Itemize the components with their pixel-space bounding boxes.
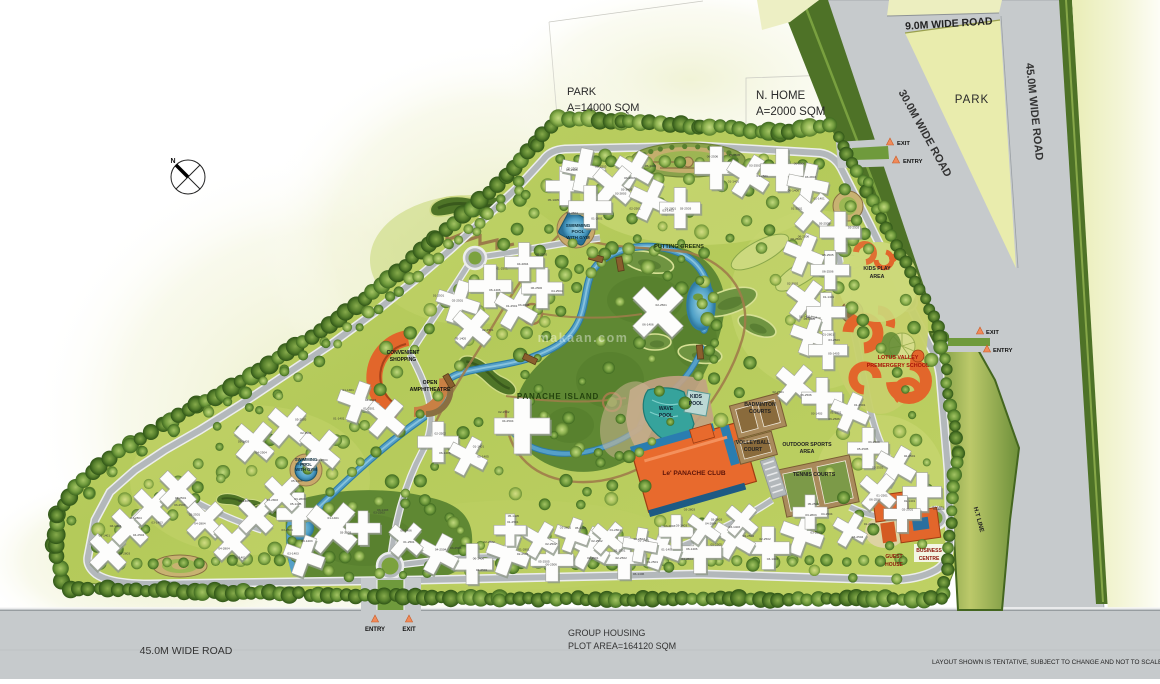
svg-text:06-2506: 06-2506: [800, 393, 812, 397]
svg-text:01-1401: 01-1401: [823, 295, 835, 299]
svg-text:03-2803: 03-2803: [805, 175, 817, 179]
svg-text:POOL: POOL: [571, 229, 584, 234]
svg-text:LAYOUT SHOWN IS TENTATIVE, SUB: LAYOUT SHOWN IS TENTATIVE, SUBJECT TO CH…: [932, 659, 1160, 666]
svg-text:03-2503: 03-2503: [868, 440, 880, 444]
svg-text:POOL: POOL: [659, 413, 673, 419]
svg-text:05-2505: 05-2505: [857, 447, 869, 451]
svg-text:03-2503: 03-2503: [848, 226, 860, 230]
svg-text:05-2505: 05-2505: [729, 153, 741, 157]
svg-text:05-2505: 05-2505: [595, 164, 607, 168]
svg-text:CENTRE: CENTRE: [919, 556, 940, 562]
svg-text:05-2505: 05-2505: [822, 253, 834, 257]
svg-text:EXIT: EXIT: [402, 627, 416, 633]
svg-text:03-2803: 03-2803: [119, 551, 131, 555]
svg-text:06-2506: 06-2506: [794, 162, 806, 166]
svg-text:05-1405: 05-1405: [575, 526, 587, 530]
svg-text:04-2804: 04-2804: [194, 521, 206, 525]
svg-text:03-2503: 03-2503: [810, 530, 822, 534]
svg-text:02-2502: 02-2502: [517, 552, 529, 556]
svg-text:03-2803: 03-2803: [624, 176, 636, 180]
svg-text:04-2804: 04-2804: [218, 546, 230, 550]
svg-text:05-2505: 05-2505: [819, 221, 831, 225]
svg-text:03-2503: 03-2503: [450, 546, 462, 550]
svg-text:01-2501: 01-2501: [830, 410, 842, 414]
svg-text:02-2501: 02-2501: [629, 206, 641, 210]
svg-text:01-1401: 01-1401: [234, 555, 246, 559]
svg-text:02-2501: 02-2501: [655, 303, 667, 307]
svg-text:06-1406: 06-1406: [788, 188, 800, 192]
svg-text:AMPHITHEATRE: AMPHITHEATRE: [410, 387, 451, 393]
svg-text:05-2505: 05-2505: [711, 543, 723, 547]
svg-text:01-1401: 01-1401: [661, 547, 673, 551]
svg-text:04-2804: 04-2804: [681, 557, 693, 561]
svg-text:06-2506: 06-2506: [707, 154, 719, 158]
svg-text:AREA: AREA: [870, 274, 885, 280]
svg-text:02-2501: 02-2501: [904, 454, 916, 458]
svg-text:05-1405: 05-1405: [828, 352, 840, 356]
svg-text:WITH GYM: WITH GYM: [295, 467, 317, 472]
svg-text:01-2801: 01-2801: [864, 522, 876, 526]
svg-text:VOLLEYBALL: VOLLEYBALL: [736, 440, 771, 446]
svg-text:04-2504: 04-2504: [806, 315, 818, 319]
svg-text:04-2504: 04-2504: [365, 398, 377, 402]
svg-text:02-2501: 02-2501: [902, 507, 914, 511]
svg-text:03-2803: 03-2803: [267, 498, 279, 502]
svg-text:06-2506: 06-2506: [828, 417, 840, 421]
svg-text:06-1406: 06-1406: [686, 547, 698, 551]
svg-text:04-2804: 04-2804: [517, 262, 529, 266]
svg-text:TENNIS COURTS: TENNIS COURTS: [793, 472, 836, 478]
svg-text:02-2502: 02-2502: [498, 410, 510, 414]
svg-text:02-2502: 02-2502: [872, 465, 884, 469]
svg-text:03-2803: 03-2803: [684, 507, 696, 511]
svg-text:makaan.com: makaan.com: [538, 331, 629, 345]
svg-text:KIDS PLAY: KIDS PLAY: [863, 266, 891, 272]
svg-text:01-2501: 01-2501: [647, 560, 659, 564]
svg-text:EXIT: EXIT: [986, 330, 999, 336]
svg-text:A=14000 SQM: A=14000 SQM: [567, 102, 639, 114]
svg-text:05-1405: 05-1405: [645, 164, 657, 168]
svg-text:05-1405: 05-1405: [508, 514, 520, 518]
svg-text:04-2504: 04-2504: [435, 547, 447, 551]
svg-text:N: N: [170, 158, 175, 165]
svg-text:LOTUS VALLEY: LOTUS VALLEY: [878, 355, 919, 361]
svg-text:COURTS: COURTS: [749, 409, 771, 415]
svg-text:01-2801: 01-2801: [823, 333, 835, 337]
svg-text:03-2503: 03-2503: [828, 338, 840, 342]
svg-text:01-2501: 01-2501: [791, 206, 803, 210]
svg-text:01-2801: 01-2801: [518, 548, 530, 552]
svg-text:01-2501: 01-2501: [854, 403, 866, 407]
svg-text:PREMERGERY SCHOOL: PREMERGERY SCHOOL: [867, 363, 930, 369]
svg-text:04-2804: 04-2804: [705, 522, 717, 526]
svg-text:02-2502: 02-2502: [483, 540, 495, 544]
svg-text:04-2504: 04-2504: [852, 535, 864, 539]
svg-text:03-2503: 03-2503: [340, 530, 352, 534]
svg-text:Le' PANACHE CLUB: Le' PANACHE CLUB: [662, 470, 726, 477]
svg-text:06-1406: 06-1406: [489, 288, 501, 292]
svg-text:POOL: POOL: [689, 401, 703, 407]
svg-text:05-1405: 05-1405: [477, 454, 489, 458]
svg-text:03-2503: 03-2503: [680, 207, 692, 211]
svg-text:GROUP HOUSING: GROUP HOUSING: [568, 628, 645, 638]
svg-text:01-2501: 01-2501: [757, 174, 769, 178]
svg-text:06-2506: 06-2506: [531, 286, 543, 290]
svg-text:PUTTING GREENS: PUTTING GREENS: [654, 244, 704, 250]
svg-text:06-2506: 06-2506: [546, 562, 558, 566]
svg-text:04-2504: 04-2504: [256, 451, 268, 455]
svg-text:06-2506: 06-2506: [869, 497, 881, 501]
svg-text:02-2501: 02-2501: [787, 282, 799, 286]
svg-text:03-1403: 03-1403: [811, 412, 823, 416]
svg-text:01-1401: 01-1401: [343, 388, 355, 392]
svg-text:05-1405: 05-1405: [238, 499, 250, 503]
svg-text:PARK: PARK: [567, 86, 597, 98]
svg-text:N. HOME: N. HOME: [756, 90, 806, 102]
svg-text:01-2501: 01-2501: [506, 304, 518, 308]
svg-text:02-2502: 02-2502: [545, 542, 557, 546]
svg-text:03-2803: 03-2803: [294, 497, 306, 501]
svg-text:01-2501: 01-2501: [433, 293, 445, 297]
svg-text:05-2505: 05-2505: [536, 252, 548, 256]
svg-text:01-2801: 01-2801: [591, 216, 603, 220]
svg-text:BADMINTON: BADMINTON: [744, 402, 776, 408]
svg-text:03-1403: 03-1403: [729, 525, 741, 529]
svg-text:04-2804: 04-2804: [130, 516, 142, 520]
svg-text:05-1405: 05-1405: [290, 502, 302, 506]
svg-text:05-2505: 05-2505: [566, 168, 578, 172]
svg-text:05-2505: 05-2505: [808, 502, 820, 506]
svg-text:01-2501: 01-2501: [175, 496, 187, 500]
svg-text:01-2501: 01-2501: [476, 568, 488, 572]
svg-text:06-1406: 06-1406: [439, 451, 451, 455]
svg-text:01-2801: 01-2801: [560, 526, 572, 530]
svg-text:WITH GYM: WITH GYM: [566, 235, 590, 240]
svg-text:04-2504: 04-2504: [551, 289, 563, 293]
svg-text:04-2504: 04-2504: [133, 533, 145, 537]
svg-text:02-2501: 02-2501: [482, 328, 494, 332]
svg-text:06-2506: 06-2506: [790, 237, 802, 241]
svg-text:03-1403: 03-1403: [301, 539, 313, 543]
svg-text:03-2503: 03-2503: [749, 164, 761, 168]
svg-text:02-2502: 02-2502: [615, 556, 627, 560]
svg-text:ENTRY: ENTRY: [903, 159, 923, 165]
svg-text:SWIMMING: SWIMMING: [566, 223, 591, 228]
svg-text:01-1401: 01-1401: [328, 516, 340, 520]
svg-text:02-2501: 02-2501: [189, 512, 201, 516]
svg-text:05-1405: 05-1405: [548, 198, 560, 202]
svg-text:02-2501: 02-2501: [772, 390, 784, 394]
svg-text:PARK: PARK: [955, 94, 989, 106]
svg-text:01-2501: 01-2501: [363, 406, 375, 410]
svg-text:EXIT: EXIT: [897, 141, 910, 147]
svg-text:03-1403: 03-1403: [676, 524, 688, 528]
svg-text:03-1403: 03-1403: [151, 521, 163, 525]
svg-text:04-2804: 04-2804: [566, 211, 578, 215]
svg-text:05-1405: 05-1405: [455, 336, 467, 340]
svg-text:A=2000 SQM: A=2000 SQM: [756, 106, 825, 118]
svg-text:SHOPPING: SHOPPING: [390, 357, 417, 363]
svg-text:CONVENIENT: CONVENIENT: [387, 350, 420, 356]
svg-text:03-1403: 03-1403: [238, 439, 250, 443]
svg-text:03-2803: 03-2803: [664, 524, 676, 528]
svg-text:OUTDOOR SPORTS: OUTDOOR SPORTS: [782, 442, 832, 448]
svg-text:AREA: AREA: [800, 449, 815, 455]
svg-text:WAVE: WAVE: [659, 406, 674, 412]
svg-text:03-2503: 03-2503: [281, 528, 293, 532]
svg-text:KIDS: KIDS: [690, 394, 703, 400]
svg-text:02-2501: 02-2501: [300, 431, 312, 435]
svg-text:01-1401: 01-1401: [813, 197, 825, 201]
svg-text:01-1401: 01-1401: [728, 180, 740, 184]
svg-text:01-1401: 01-1401: [99, 534, 111, 538]
svg-text:03-1403: 03-1403: [767, 557, 779, 561]
svg-text:06-2506: 06-2506: [822, 269, 834, 273]
svg-text:ENTRY: ENTRY: [365, 627, 385, 633]
svg-text:01-2501: 01-2501: [496, 266, 508, 270]
svg-text:01-2801: 01-2801: [610, 528, 622, 532]
svg-text:02-2502: 02-2502: [759, 537, 771, 541]
svg-text:06-1406: 06-1406: [473, 556, 485, 560]
svg-text:03-2503: 03-2503: [373, 510, 385, 514]
svg-text:01-2501: 01-2501: [507, 520, 519, 524]
svg-text:01-2501: 01-2501: [876, 494, 888, 498]
svg-text:03-1403: 03-1403: [287, 551, 299, 555]
svg-text:HOUSE: HOUSE: [885, 562, 903, 568]
svg-text:03-2503: 03-2503: [174, 503, 186, 507]
svg-text:45.0M WIDE ROAD: 45.0M WIDE ROAD: [140, 645, 233, 657]
svg-text:02-2501: 02-2501: [587, 556, 599, 560]
svg-text:06-1406: 06-1406: [633, 572, 645, 576]
svg-text:03-1403: 03-1403: [110, 524, 122, 528]
svg-text:01-2501: 01-2501: [403, 540, 415, 544]
svg-text:04-2504: 04-2504: [316, 458, 328, 462]
svg-text:04-2504: 04-2504: [821, 512, 833, 516]
svg-text:01-2501: 01-2501: [614, 548, 626, 552]
svg-text:01-1401: 01-1401: [473, 445, 485, 449]
svg-text:02-2502: 02-2502: [434, 431, 446, 435]
svg-text:ENTRY: ENTRY: [993, 348, 1013, 354]
svg-text:03-2503: 03-2503: [518, 303, 530, 307]
svg-text:03-2503: 03-2503: [634, 537, 646, 541]
svg-text:01-1401: 01-1401: [904, 499, 916, 503]
svg-text:PLOT AREA=164120 SQM: PLOT AREA=164120 SQM: [568, 641, 676, 651]
svg-text:GUEST: GUEST: [885, 554, 902, 560]
svg-text:PANACHE ISLAND: PANACHE ISLAND: [517, 392, 599, 401]
svg-text:03-1403: 03-1403: [621, 188, 633, 192]
svg-text:04-2504: 04-2504: [743, 534, 755, 538]
svg-text:05-1405: 05-1405: [291, 479, 303, 483]
svg-text:02-2501: 02-2501: [452, 298, 464, 302]
svg-text:03-2803: 03-2803: [615, 192, 627, 196]
svg-text:05-2505: 05-2505: [295, 418, 307, 422]
svg-text:03-2803: 03-2803: [805, 513, 817, 517]
svg-text:01-1401: 01-1401: [933, 505, 945, 509]
svg-text:02-2502: 02-2502: [591, 539, 603, 543]
svg-text:OPEN: OPEN: [423, 380, 438, 386]
svg-text:BUSINESS: BUSINESS: [916, 548, 942, 554]
svg-text:COURT: COURT: [744, 447, 763, 453]
svg-text:06-1406: 06-1406: [400, 528, 412, 532]
svg-text:01-2801: 01-2801: [665, 207, 677, 211]
svg-text:04-2504: 04-2504: [502, 419, 514, 423]
svg-text:01-1401: 01-1401: [333, 417, 345, 421]
svg-text:06-1406: 06-1406: [642, 323, 654, 327]
